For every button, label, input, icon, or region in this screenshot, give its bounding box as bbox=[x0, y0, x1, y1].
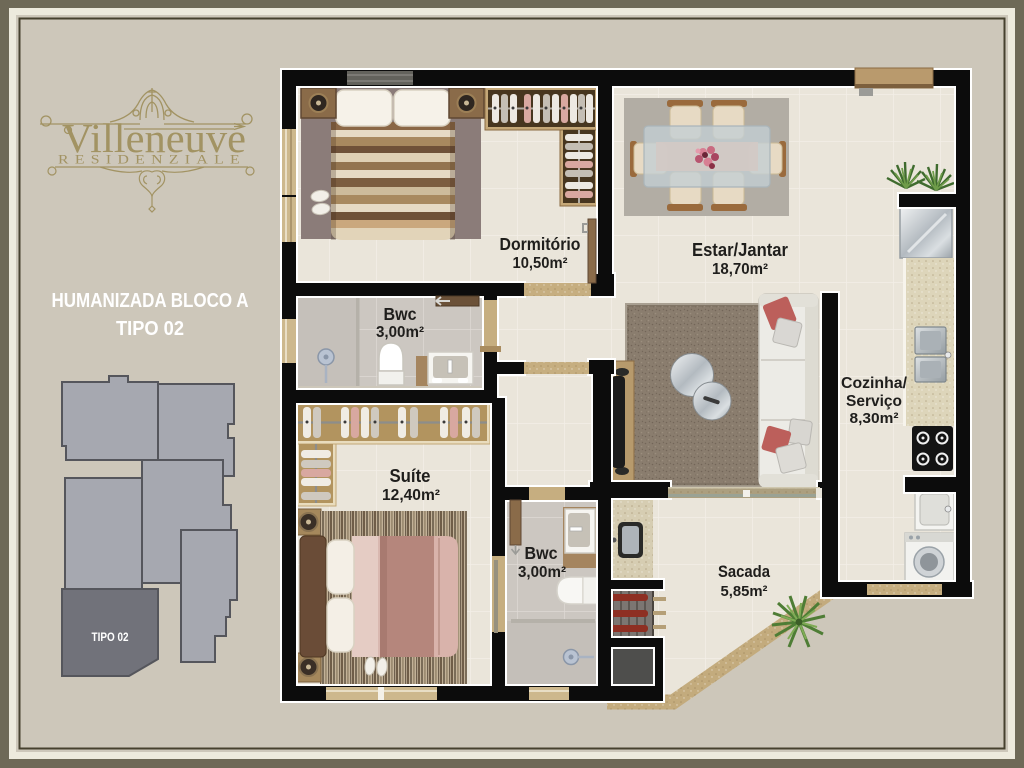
svg-text:Estar/Jantar: Estar/Jantar bbox=[692, 240, 788, 260]
svg-text:8,30m²: 8,30m² bbox=[850, 410, 899, 427]
svg-text:Bwc: Bwc bbox=[384, 304, 417, 324]
svg-text:18,70m²: 18,70m² bbox=[712, 261, 768, 278]
svg-text:3,00m²: 3,00m² bbox=[376, 324, 424, 341]
svg-text:HUMANIZADA BLOCO A: HUMANIZADA BLOCO A bbox=[52, 290, 249, 312]
svg-text:TIPO 02: TIPO 02 bbox=[116, 318, 184, 340]
svg-text:3,00m²: 3,00m² bbox=[518, 564, 566, 581]
svg-text:Sacada: Sacada bbox=[718, 563, 771, 581]
svg-text:Dormitório: Dormitório bbox=[500, 234, 581, 254]
svg-text:Bwc: Bwc bbox=[525, 543, 558, 563]
svg-text:5,85m²: 5,85m² bbox=[721, 583, 768, 600]
svg-text:10,50m²: 10,50m² bbox=[513, 255, 568, 272]
svg-text:12,40m²: 12,40m² bbox=[382, 487, 440, 504]
svg-text:TIPO 02: TIPO 02 bbox=[92, 632, 129, 644]
svg-text:Suíte: Suíte bbox=[390, 466, 431, 486]
svg-text:RESIDENZIALE: RESIDENZIALE bbox=[58, 153, 246, 167]
svg-text:Cozinha/: Cozinha/ bbox=[841, 375, 908, 392]
svg-text:Serviço: Serviço bbox=[846, 393, 902, 410]
